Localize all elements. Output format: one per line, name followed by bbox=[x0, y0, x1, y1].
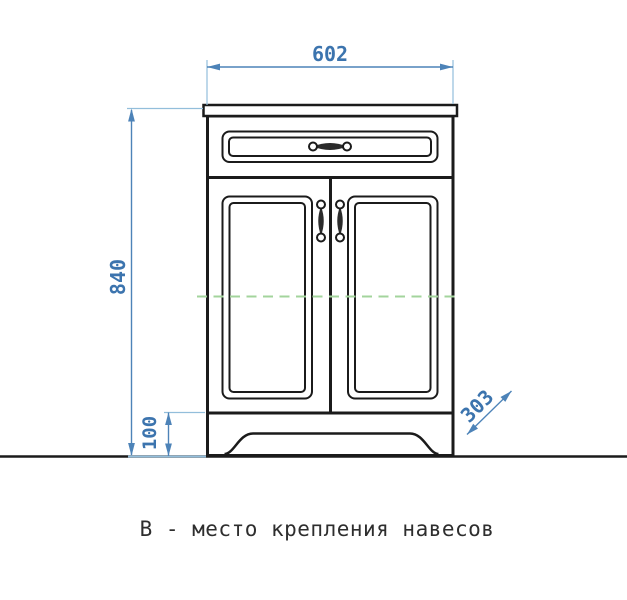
arrow-right-icon bbox=[440, 64, 453, 71]
dim-plinth-label: 100 bbox=[139, 416, 161, 450]
countertop bbox=[204, 105, 458, 116]
dim-width-label: 602 bbox=[312, 42, 348, 66]
caption-mount-note: В - место крепления навесов bbox=[140, 517, 495, 541]
dim-height-label: 840 bbox=[106, 259, 130, 295]
dimension-plinth-height bbox=[164, 413, 205, 457]
arrow-down-icon bbox=[165, 444, 172, 457]
arrow-up-icon bbox=[165, 413, 172, 426]
arrow-down-icon bbox=[128, 443, 135, 456]
arrow-left-icon bbox=[207, 64, 220, 71]
arrow-up-icon bbox=[128, 109, 135, 122]
drawing-canvas bbox=[0, 0, 627, 600]
dimension-height bbox=[127, 109, 206, 457]
cabinet-body bbox=[204, 105, 458, 456]
cabinet-technical-drawing: 602 840 100 303 В - место крепления наве… bbox=[0, 0, 627, 600]
dimension-width bbox=[207, 60, 453, 105]
drawer-handle-icon bbox=[309, 143, 351, 151]
